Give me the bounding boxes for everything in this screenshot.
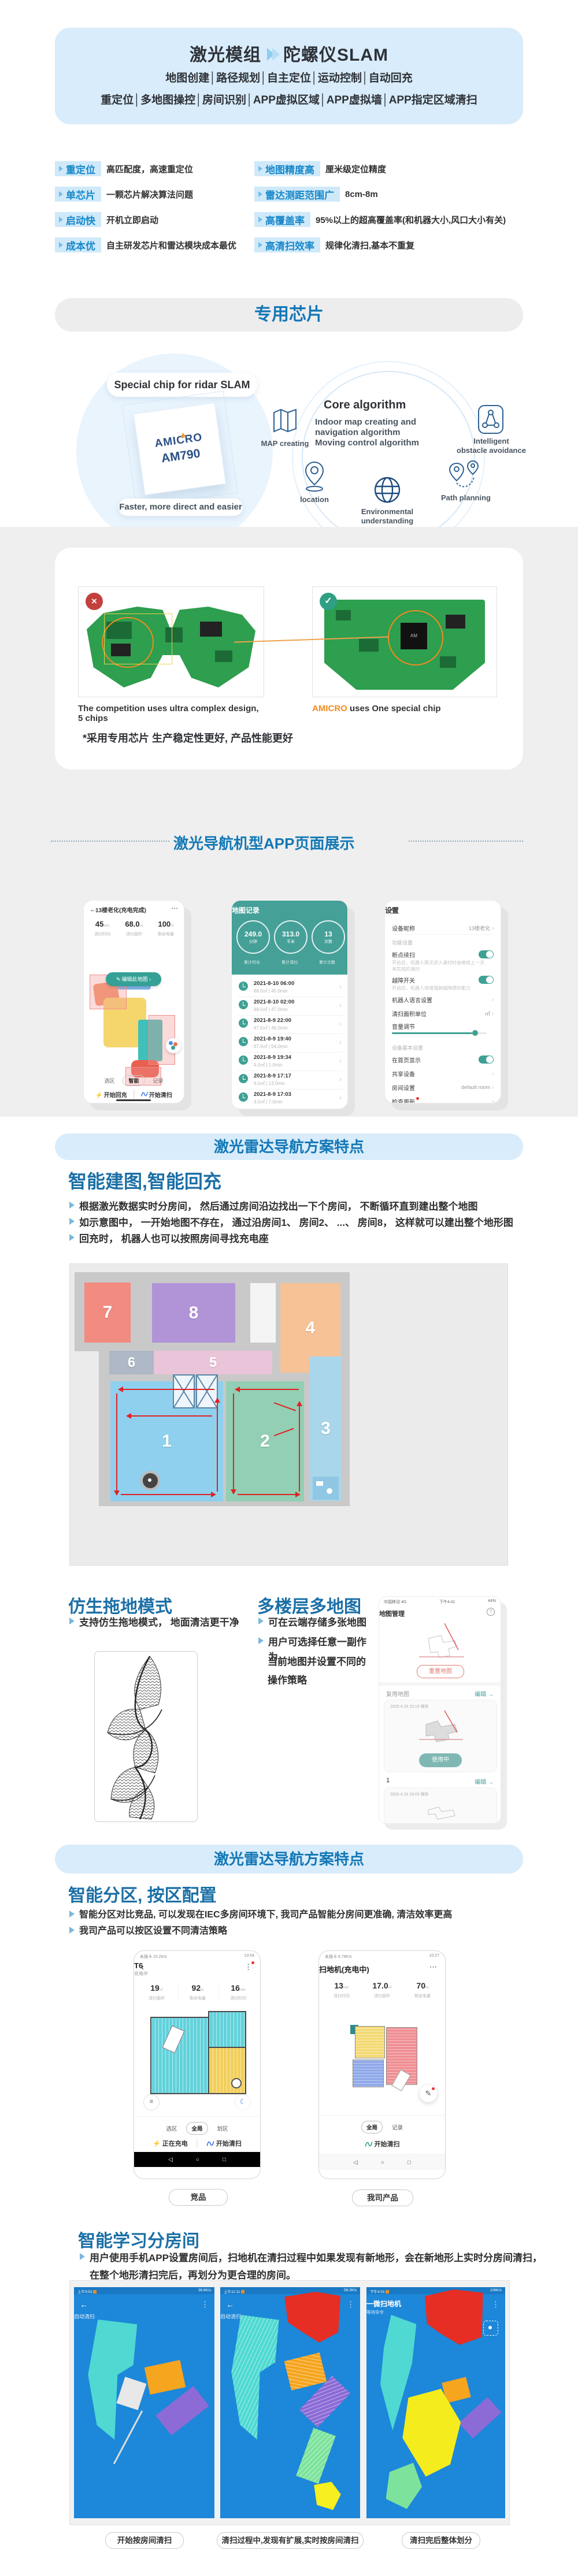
chevron-right-icon <box>492 1098 494 1103</box>
edit-link[interactable]: 编辑 → <box>475 1689 494 1698</box>
bullet-item: 根据激光数据实时分房间， 然后通过房间沿边找出一下个房间， 不断循环直到建出整个… <box>69 1199 526 1214</box>
more-menu-icon[interactable] <box>244 1962 252 1972</box>
in-use-button[interactable]: 使用中 <box>419 1753 462 1767</box>
notif-icon <box>241 2290 244 2294</box>
status-bar: 上午9:52 36.6K/s <box>77 2288 211 2294</box>
bullet-icon <box>69 1218 75 1225</box>
layers-fab[interactable] <box>166 1038 181 1053</box>
path-arrow <box>128 1415 212 1417</box>
toggle-on[interactable] <box>479 1055 494 1064</box>
arrowhead <box>295 1492 303 1497</box>
cleaning-map <box>150 2011 244 2092</box>
feature-row: 地图精度高厘米级定位精度 <box>254 161 386 176</box>
robot-vacuum <box>140 1471 160 1490</box>
setting-show-home: 在首页显示 <box>392 1054 494 1065</box>
edit-map-fab[interactable] <box>420 2085 437 2102</box>
record-row[interactable]: 2021-8-10 02:0068.0㎡ | 47.0min <box>238 998 343 1016</box>
chevron-right-icon <box>339 1020 342 1028</box>
tab-select-area[interactable]: 选区 <box>104 1077 114 1084</box>
chevron-right-icon <box>339 1001 342 1009</box>
stat: 17.0㎡清扫面积 <box>363 1981 401 1999</box>
feature-desc: 厘米级定位精度 <box>325 163 386 175</box>
settings-title: 设置 <box>385 905 501 915</box>
map-region-cyan <box>231 2315 279 2440</box>
elevator <box>173 1374 195 1408</box>
feature-row: 高覆盖率95%以上的超高覆盖率(和机器大小,风口大小有关) <box>254 212 506 227</box>
phone1-title: 13楼老化(充电完成) <box>95 905 172 914</box>
record-row[interactable]: 2021-8-9 19:344.0㎡ | 1.0min <box>238 1053 343 1071</box>
clock-icon <box>239 1092 248 1102</box>
arrowhead <box>123 1413 131 1419</box>
chevron-right-icon <box>258 166 262 172</box>
record-row[interactable]: 2021-8-9 19:4067.0㎡ | 54.0min <box>238 1035 343 1053</box>
feature-row: 单芯片一颗芯片解决算法问题 <box>55 187 193 202</box>
pcb-component <box>215 650 232 662</box>
reset-map-button[interactable]: 重置地图 <box>417 1665 464 1678</box>
mop-pattern-image <box>94 1651 198 1822</box>
dotted-line-right <box>409 841 523 842</box>
feature-desc: 一颗芯片解决算法问题 <box>106 188 193 200</box>
double-chevron-icon <box>267 46 277 65</box>
setting-share[interactable]: 共享设备 <box>392 1068 494 1079</box>
pcb-highlight-rect <box>104 614 172 664</box>
setting-language[interactable]: 机器人语言设置 <box>392 994 494 1005</box>
section-banner-lidar1: 激光雷达导航方案特点 <box>55 1133 523 1160</box>
tab-smart[interactable]: 智能 <box>123 1075 144 1086</box>
tab-selected[interactable]: 全局 <box>361 2121 383 2133</box>
more-menu-icon[interactable] <box>201 2300 209 2309</box>
competitor-phone: 未插卡 15.2K/s10:54 T6 充电中 19㎡清扫面积 92%剩余电量 … <box>134 1950 261 2179</box>
notif-icon <box>93 2290 97 2294</box>
clock-icon <box>239 982 248 991</box>
reuse-label: 复用地图 <box>386 1689 409 1698</box>
room-5: 5 <box>154 1351 272 1374</box>
map-sketch <box>419 1798 465 1823</box>
chip-caption: Faster, more direct and easier <box>118 499 243 516</box>
stat: 19㎡清扫面积 <box>138 1983 176 2001</box>
feature-desc: 规律化清扫,基本不重复 <box>325 239 414 251</box>
bullet-icon <box>258 1637 264 1644</box>
total-minutes-circle: 249.0分钟 <box>236 920 270 954</box>
map-creating-icon <box>271 406 299 438</box>
map-region-white <box>117 2377 147 2410</box>
obstacle-label-1: Intelligent <box>457 437 526 445</box>
robot-marker <box>231 2078 242 2088</box>
map-region-orange <box>144 2360 186 2395</box>
circle-label: 累计时长 <box>235 960 269 965</box>
total-count-circle: 13次数 <box>312 920 345 954</box>
android-navbar <box>134 2152 260 2167</box>
total-area-circle: 313.0平米 <box>274 920 307 954</box>
setting-volume: 音量调节 <box>392 1021 494 1031</box>
environmental-label-2: understanding <box>355 516 419 525</box>
path-arrow <box>116 1393 117 1493</box>
caption-step-1: 开始按房间清扫 <box>105 2532 184 2549</box>
arrowhead <box>297 1398 302 1406</box>
mode-tabs: 选区 智能 记录 <box>84 1075 184 1086</box>
setting-unit[interactable]: 清扫面积单位㎡ <box>392 1008 494 1018</box>
bullet-item: 可在云端存储多张地图 <box>258 1615 374 1630</box>
chevron-right-icon <box>59 217 63 222</box>
home-indicator <box>116 1099 151 1101</box>
check-badge-icon <box>320 593 337 610</box>
map-card-date: 2020.4.15 15:13 保存 <box>390 1704 429 1709</box>
map-card-active[interactable]: 2020.4.15 15:13 保存 使用中 <box>384 1700 497 1772</box>
pcb-component <box>446 615 465 629</box>
feature-tag: 重定位 <box>55 161 101 176</box>
toggle-on[interactable] <box>479 976 494 984</box>
room-7: 7 <box>84 1283 131 1343</box>
circle-label: 累计清扫 <box>272 960 307 965</box>
obstacle-label-2: obstacle avoidance <box>457 446 526 455</box>
room-6: 6 <box>109 1351 154 1374</box>
environmental-label-1: Environmental <box>355 507 419 516</box>
pcb-left-caption: The competition uses ultra complex desig… <box>78 704 263 723</box>
section-label: 设备基本设置 <box>392 1044 423 1051</box>
feature-desc: 95%以上的超高覆盖率(和机器大小,风口大小有关) <box>316 214 506 226</box>
environmental-understanding-icon <box>372 474 402 509</box>
floor-plan: 7 8 4 6 5 1 2 3 <box>69 1263 508 1566</box>
obstacle-avoidance-icon <box>476 403 505 438</box>
core-line-1: Indoor map creating and <box>315 417 465 427</box>
menu-badge <box>251 1961 254 1964</box>
hero-feature-line-1: 地图创建│路径规划│自主定位│运动控制│自动回充 <box>55 69 523 85</box>
learning-title: 智能学习分房间 <box>78 2226 199 2252</box>
android-navbar <box>319 2154 445 2170</box>
edit-map-button[interactable]: 编辑此地图 › <box>106 972 161 986</box>
divider <box>379 1682 501 1686</box>
map-region-purple <box>155 2386 209 2436</box>
bullet-icon <box>69 1910 75 1917</box>
mop-title: 仿生拖地模式 <box>68 1592 172 1618</box>
bullet-icon <box>258 1618 264 1625</box>
app-phone-records: 地图记录 249.0分钟 313.0平米 13次数 累计时长 累计清扫 累计次数… <box>231 900 348 1109</box>
learning-phone-2: 上午11:11 58.2K/s 自动清扫 <box>220 2287 360 2518</box>
chevron-right-icon <box>339 1057 342 1065</box>
tab[interactable]: 选区 <box>166 2124 177 2132</box>
chevron-right-icon <box>339 1094 342 1102</box>
section-banner-chip: 专用芯片 <box>55 298 523 332</box>
setting-nickname[interactable]: 设备昵称13楼老化 <box>392 921 494 935</box>
feature-row: 启动快开机立即启动 <box>55 212 158 227</box>
status-bar: 上午11:11 58.2K/s <box>224 2288 357 2294</box>
device-name: 扫地机(充电中) <box>319 1964 445 1975</box>
hero-feature-line-2: 重定位│多地图操控│房间识别│APP虚拟区域│APP虚拟墙│APP指定区域清扫 <box>55 91 523 107</box>
setting-obstacle: 越障开关 <box>392 975 494 985</box>
our-product-phone: 未插卡 6.78K/s10:27 扫地机(充电中) 13min清扫时间 17.0… <box>318 1950 446 2179</box>
more-menu-icon[interactable] <box>171 904 178 912</box>
device-state: 充电中 <box>134 1971 260 1977</box>
toggle-on[interactable] <box>479 950 494 958</box>
room-empty <box>250 1283 276 1343</box>
nav-recent-icon[interactable] <box>407 2159 411 2166</box>
area-select-icon[interactable] <box>483 2321 498 2336</box>
map-region-blue <box>353 2060 384 2087</box>
page-title-right: 陀螺仪SLAM <box>283 46 388 65</box>
stat: 92%剩余电量 <box>178 1983 217 2001</box>
nav-back-icon[interactable] <box>168 2157 173 2163</box>
dotted-line-left <box>51 841 169 842</box>
path-arrow <box>217 1398 218 1492</box>
clock-label: 下午4:41 <box>439 1599 455 1605</box>
setting-update[interactable]: 检查更新 <box>392 1096 494 1103</box>
map-region-red <box>425 2289 483 2345</box>
path-arrow <box>238 1494 298 1495</box>
map-sketch <box>414 1709 466 1746</box>
divider <box>319 2115 445 2116</box>
feature-desc: 高匹配度，高速重定位 <box>106 163 193 175</box>
pcb-right-photo: AM <box>312 586 497 697</box>
pcb-component <box>440 656 456 668</box>
map-index-label: 1 <box>386 1777 390 1784</box>
bullet-item: 智能分区对比竞品, 可以发现在IEC多房间环境下, 我司产品智能分房间更准确, … <box>69 1908 526 1923</box>
chevron-right-icon <box>59 242 63 248</box>
multimap-title: 多楼层多地图 <box>257 1592 361 1618</box>
core-line-3: Moving control algorithm <box>315 438 465 448</box>
room-8: 8 <box>152 1283 235 1343</box>
phone2-title: 地图记录 <box>232 905 347 915</box>
clock-icon <box>239 1055 248 1065</box>
volume-slider[interactable] <box>392 1032 487 1034</box>
chevron-right-icon <box>59 166 63 172</box>
bullet-icon <box>69 1234 75 1241</box>
tab[interactable]: 记录 <box>392 2123 403 2131</box>
record-row[interactable]: 2021-8-9 17:176.0㎡ | 13.0min <box>238 1072 343 1090</box>
map-manage-title: 地图管理 <box>379 1609 501 1618</box>
path-planning-label: Path planning <box>437 493 495 502</box>
nav-recent-icon[interactable] <box>223 2157 226 2163</box>
build-map-title: 智能建图,智能回充 <box>68 1167 221 1194</box>
chevron-right-icon <box>492 925 494 931</box>
stat-battery: 100%剩余电量 <box>151 919 181 937</box>
bottom-actions: 正在充电 | 开始清扫 <box>134 2138 260 2148</box>
map-region-yellow <box>402 2389 461 2477</box>
cross-badge-icon <box>86 593 103 610</box>
chevron-right-icon <box>258 191 262 197</box>
device-name: T6 <box>134 1961 260 1970</box>
feature-tag: 单芯片 <box>55 187 101 202</box>
records-header: 地图记录 249.0分钟 313.0平米 13次数 累计时长 累计清扫 累计次数 <box>232 901 347 975</box>
feature-tag: 高清扫效率 <box>254 237 320 252</box>
recharge-button[interactable]: 开始回充 <box>95 1090 127 1099</box>
map-creating-label: MAP creating <box>259 439 311 448</box>
elevator <box>196 1374 218 1408</box>
clock-icon <box>239 1074 248 1083</box>
map-region-orange <box>284 2352 327 2391</box>
path-arrow <box>233 1393 234 1492</box>
map-region-purple <box>459 2397 502 2439</box>
feature-tag: 高覆盖率 <box>254 212 310 227</box>
learning-phone-1: 上午9:52 36.6K/s 自动清扫 <box>74 2287 214 2518</box>
map-region-green <box>386 2463 422 2509</box>
charging-label[interactable]: 正在充电 <box>153 2139 188 2148</box>
mode-tabs: 选区 全局 划区 <box>134 2122 260 2135</box>
section-label: 功能设置 <box>392 939 413 946</box>
chevron-right-icon <box>492 1084 494 1090</box>
bolt-icon <box>95 1092 102 1099</box>
arrowhead <box>231 1489 236 1497</box>
feature-tag: 地图精度高 <box>254 161 320 176</box>
page-title: 激光模组陀螺仪SLAM <box>55 40 523 66</box>
arrowhead <box>211 1492 219 1497</box>
app-phone-settings: 设置 设备昵称13楼老化 功能设置 断点续扫 开启后，机器人再次进入清扫时会继续… <box>384 900 501 1103</box>
caption-step-2: 清扫过程中,发现有扩展,实时按房间清扫 <box>217 2532 364 2549</box>
record-row[interactable]: 2021-8-10 06:0068.0㎡ | 45.0min <box>238 979 343 997</box>
help-icon[interactable] <box>487 1608 495 1616</box>
bathroom <box>313 1477 339 1500</box>
section-banner-lidar2: 激光雷达导航方案特点 <box>55 1845 523 1874</box>
arrowhead <box>114 1490 120 1499</box>
notif-icon <box>386 2290 389 2294</box>
stat: 70%剩余电量 <box>403 1981 442 1999</box>
chevron-right-icon <box>258 217 262 222</box>
clock-icon <box>239 1037 248 1046</box>
arrowhead <box>115 1386 123 1392</box>
page-title-left: 激光模组 <box>190 46 261 65</box>
learning-phone-3: 下午4:01 106K/s 一微扫地机 等待命令 <box>366 2287 505 2518</box>
app-showcase-title: 激光导航机型APP页面展示 <box>173 832 405 853</box>
nav-home-icon[interactable] <box>381 2159 384 2166</box>
record-row[interactable]: 2021-8-9 22:0067.0㎡ | 46.0min <box>238 1016 343 1034</box>
carrier-label: 中国移动 4G <box>384 1599 406 1605</box>
path-arrow <box>238 1389 299 1390</box>
path-planning-icon <box>446 460 482 495</box>
pcb-component <box>200 622 222 637</box>
bullet-icon <box>69 1927 75 1934</box>
bullet-icon <box>80 2253 85 2260</box>
more-menu-icon[interactable] <box>429 1962 437 1972</box>
chip-body: AMICRO AM790 <box>134 403 226 495</box>
app-phone-map: 13楼老化(充电完成) 45min清扫时间 68.0㎡清扫面积 100%剩余电量… <box>83 900 184 1103</box>
record-row[interactable]: 2021-8-9 17:033.0㎡ | 7.0min <box>238 1090 343 1107</box>
room-2: 2 <box>226 1381 304 1501</box>
list-button[interactable]: ≡ <box>143 2094 160 2110</box>
back-icon[interactable] <box>226 2300 234 2309</box>
feature-row: 重定位高匹配度，高速重定位 <box>55 161 193 176</box>
map-region-green <box>296 2428 336 2484</box>
map-region-yellow <box>355 2026 385 2058</box>
feature-row: 成本优自主研发芯片和雷达模块成本最优 <box>55 237 236 252</box>
bullet-cont: 在整个地形清扫完后，再划分为更合理的房间。 <box>90 2267 296 2281</box>
map-card-2[interactable]: 2020.4.15 16:03 保存 <box>384 1787 497 1824</box>
divider <box>134 2116 260 2117</box>
map-region-red <box>284 2292 340 2343</box>
bullet-item: 支持仿生拖地模式， 地面清洁更干净 <box>69 1615 243 1630</box>
setting-desc: 开启后，机器人再次进入清扫时会继续上一次 <box>392 960 484 966</box>
pcb-note: *采用专用芯片 生产稳定性更好, 产品性能更好 <box>83 730 293 745</box>
special-chip-label: Special chip for ridar SLAM <box>107 373 257 397</box>
path-arrow <box>121 1389 214 1390</box>
chevron-right-icon <box>258 242 262 248</box>
bullet-cont: 当前地图并设置不同的 <box>268 1653 366 1668</box>
brand-orange: AMICRO <box>312 704 347 713</box>
stat-time: 45min清扫时间 <box>87 919 117 937</box>
chevron-right-icon <box>492 1070 494 1076</box>
bullet-item: 我司产品可以按区设置不同清洁策略 <box>69 1924 526 1939</box>
clean-button[interactable]: 开始清扫 <box>141 1090 172 1099</box>
chevron-right-icon <box>492 1010 494 1016</box>
competitor-label: 竞品 <box>169 2189 228 2206</box>
path-arrow <box>121 1494 213 1495</box>
map-manage-phone: 中国移动 4G下午4:4144% 地图管理 重置地图 复用地图 编辑 → 202… <box>379 1596 501 1824</box>
stat: 16min清扫时间 <box>218 1983 257 2001</box>
map-canvas: 编辑此地图 › <box>84 942 184 1073</box>
stat: 13min清扫时间 <box>323 1981 361 1999</box>
bullet-item: 用户使用手机APP设置房间后，扫地机在清扫过程中如果发现有新地形，会在新地形上实… <box>80 2251 548 2266</box>
setting-desc: 未完成的清扫 <box>392 966 420 972</box>
feature-tag: 成本优 <box>55 237 101 252</box>
feature-row: 高清扫效率规律化清扫,基本不重复 <box>254 237 414 252</box>
status-bar: 未插卡 6.78K/s10:27 <box>325 1954 439 1960</box>
nav-home-icon[interactable] <box>196 2157 199 2163</box>
page: 激光模组陀螺仪SLAM 地图创建│路径规划│自主定位│运动控制│自动回充 重定位… <box>0 0 578 2576</box>
bolt-icon <box>153 2140 161 2147</box>
bullet-icon <box>69 1618 75 1625</box>
path-arrow <box>299 1403 300 1492</box>
learning-gallery: 上午9:52 36.6K/s 自动清扫 上午11:11 58.2K/s 自动清扫 <box>69 2280 510 2525</box>
tab-records[interactable]: 记录 <box>153 1077 164 1084</box>
bullet-item: 如示意图中， 一开始地图不存在， 通过沿房间1、 房间2、 ...、 房间8， … <box>69 1215 526 1231</box>
map-region-cyan <box>208 2011 246 2049</box>
pcb-component <box>336 610 351 620</box>
chip-model: AM790 <box>161 447 201 466</box>
setting-resume: 断点续扫 <box>392 949 494 960</box>
stat-area: 68.0㎡清扫面积 <box>118 919 150 937</box>
pcb-right-caption: AMICRO uses One special chip <box>312 704 496 713</box>
feature-desc: 自主研发芯片和雷达模块成本最优 <box>106 239 236 251</box>
arrowhead <box>214 1395 220 1403</box>
caption-step-3: 清扫完后整体划分 <box>402 2532 480 2549</box>
edit-link[interactable]: 编辑 → <box>475 1777 494 1786</box>
feature-desc: 开机立即启动 <box>106 214 158 226</box>
feature-desc: 8cm-8m <box>345 189 378 199</box>
location-icon <box>302 460 327 496</box>
nav-back-icon[interactable] <box>353 2159 358 2166</box>
cleaning-map <box>350 2025 418 2088</box>
map-card-date: 2020.4.15 16:03 保存 <box>390 1791 429 1797</box>
hero-banner: 激光模组陀螺仪SLAM 地图创建│路径规划│自主定位│运动控制│自动回充 重定位… <box>55 28 523 124</box>
our-product-label: 我司产品 <box>352 2190 413 2206</box>
fab-badge <box>432 2087 435 2090</box>
chevron-right-icon <box>339 1075 342 1083</box>
back-icon[interactable] <box>80 2300 88 2309</box>
feature-tag: 启动快 <box>55 212 101 227</box>
status-bar: 中国移动 4G下午4:4144% <box>384 1599 496 1605</box>
clock-icon <box>239 1000 248 1009</box>
map-region-yellow <box>208 2047 246 2094</box>
clean-button[interactable]: 开始清扫 <box>206 2139 242 2148</box>
status-bar: 未插卡 15.2K/s10:54 <box>140 1954 254 1960</box>
mode-tabs: 全局 记录 <box>319 2121 445 2133</box>
feature-row: 雷达测距范围广8cm-8m <box>254 187 378 202</box>
dnd-moon-button[interactable] <box>235 2094 251 2110</box>
current-map-sketch <box>411 1621 469 1664</box>
more-menu-icon[interactable] <box>347 2300 354 2309</box>
setting-desc: 开启后，机器人将增强跨越障碍的能力 <box>392 985 470 991</box>
core-line-2: navigation algorithm <box>315 428 465 437</box>
mode-label: 自动清扫 <box>74 2313 214 2320</box>
tab-selected[interactable]: 全局 <box>186 2122 208 2135</box>
clock-icon <box>239 1018 248 1028</box>
clean-button[interactable]: 开始清扫 <box>365 2139 400 2148</box>
tab[interactable]: 划区 <box>217 2124 228 2132</box>
pcb-highlight-circle <box>388 610 443 666</box>
bullet-cont: 操作策略 <box>268 1672 307 1686</box>
bullet-item: 回充时， 机器人也可以按照房间寻找充电座 <box>69 1232 526 1247</box>
setting-room[interactable]: 房间设置default room <box>392 1082 494 1092</box>
partition-title: 智能分区, 按区配置 <box>68 1881 217 1906</box>
bullet-icon <box>69 1202 75 1209</box>
